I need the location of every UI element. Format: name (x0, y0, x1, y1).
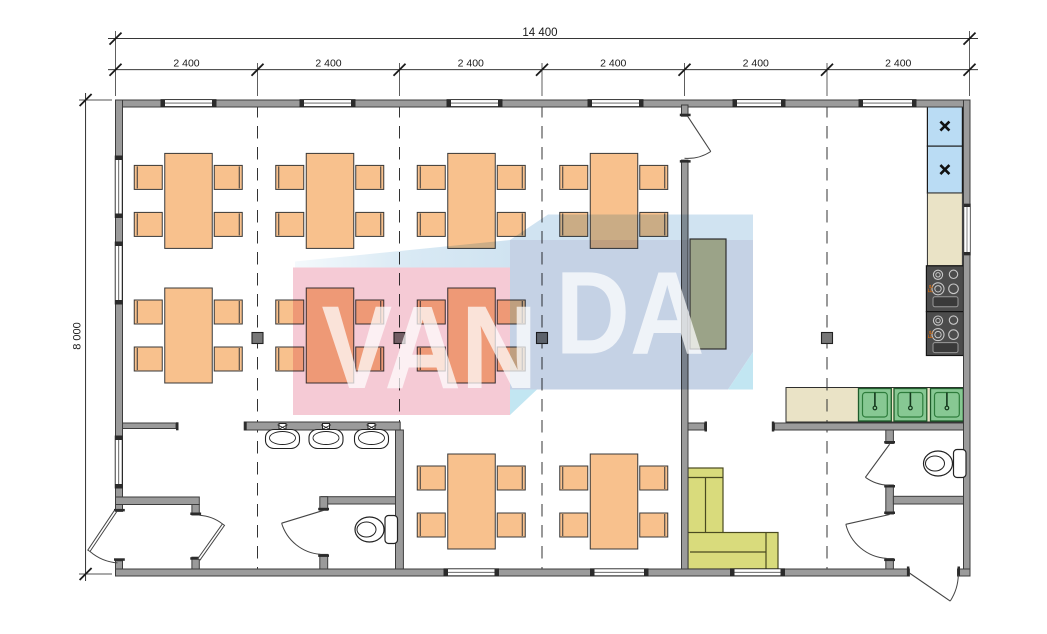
svg-text:2 400: 2 400 (885, 58, 911, 70)
svg-text:2 400: 2 400 (315, 58, 341, 70)
svg-text:Fe: Fe (928, 285, 935, 293)
svg-text:14 400: 14 400 (522, 27, 557, 39)
svg-text:8 000: 8 000 (72, 322, 84, 350)
svg-text:2 400: 2 400 (458, 58, 484, 70)
svg-text:DA: DA (556, 248, 705, 380)
svg-text:2 400: 2 400 (743, 58, 769, 70)
svg-text:VAN: VAN (322, 282, 538, 414)
svg-text:2 400: 2 400 (173, 58, 199, 70)
svg-text:2 400: 2 400 (600, 58, 626, 70)
svg-text:Fe: Fe (928, 330, 935, 338)
